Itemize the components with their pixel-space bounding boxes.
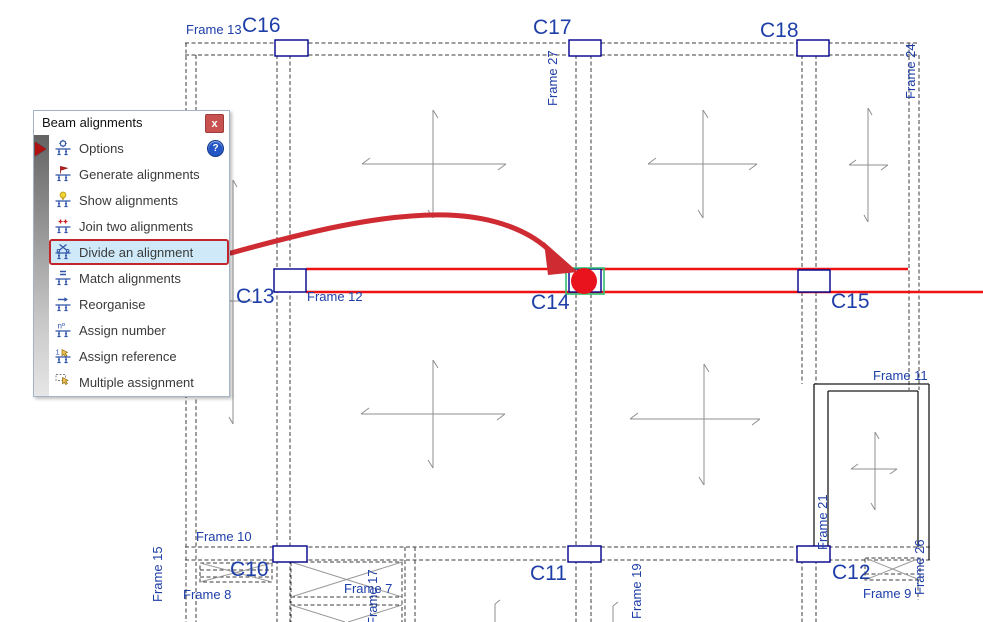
slab-cross-symbols: [222, 108, 897, 622]
svg-text:1: 1: [56, 348, 60, 357]
options-gear-icon: [54, 139, 72, 157]
reorganise-arrow-icon: [54, 295, 72, 313]
column-label-c18: C18: [760, 20, 799, 41]
menu-item-divide-an-alignment[interactable]: Divide an alignment: [49, 239, 229, 265]
frame-label-frame-19: Frame 19: [630, 563, 645, 619]
menu-item-assign-reference[interactable]: 1Assign reference: [49, 343, 229, 369]
show-bulb-icon: [54, 191, 72, 209]
column-label-c17: C17: [533, 17, 572, 38]
annotation-arrow: [231, 215, 578, 275]
frame-label-frame-13: Frame 13: [186, 23, 242, 36]
divide-scissors-icon: [54, 243, 72, 261]
column-label-c14: C14: [531, 292, 570, 313]
frame-label-frame-15: Frame 15: [151, 546, 166, 602]
menu-item-label: Divide an alignment: [79, 245, 193, 260]
plan-solid-room-walls: [814, 384, 929, 560]
generate-flag-icon: [54, 165, 72, 183]
help-icon[interactable]: ?: [207, 140, 224, 157]
frame-label-frame-24: Frame 24: [904, 43, 919, 99]
app-canvas: Frame 13C16C17C18Frame 27Frame 24C13Fram…: [0, 0, 983, 622]
column-label-c11: C11: [530, 563, 567, 584]
panel-gradient-strip: [34, 135, 49, 396]
frame-label-frame-10: Frame 10: [196, 530, 252, 543]
menu-item-label: Reorganise: [79, 297, 146, 312]
menu-item-label: Multiple assignment: [79, 375, 194, 390]
menu-item-label: Match alignments: [79, 271, 181, 286]
menu-item-label: Assign number: [79, 323, 166, 338]
menu-item-label: Options: [79, 141, 124, 156]
beam-alignments-panel: Beam alignments x Options?Generate align…: [33, 110, 230, 397]
menu-item-assign-number[interactable]: nºAssign number: [49, 317, 229, 343]
column-label-c10: C10: [230, 559, 269, 580]
join-alignments-icon: [54, 217, 72, 235]
column-label-c15: C15: [831, 291, 870, 312]
column-label-c13: C13: [236, 286, 275, 307]
menu-item-label: Join two alignments: [79, 219, 193, 234]
menu-item-show-alignments[interactable]: Show alignments: [49, 187, 229, 213]
highlighted-beam-alignment[interactable]: [306, 269, 983, 292]
assign-reference-icon: 1: [54, 347, 72, 365]
menu-item-label: Assign reference: [79, 349, 177, 364]
frame-label-frame-8: Frame 8: [183, 588, 231, 601]
menu-item-label: Show alignments: [79, 193, 178, 208]
menu-item-match-alignments[interactable]: Match alignments: [49, 265, 229, 291]
menu-item-reorganise[interactable]: Reorganise: [49, 291, 229, 317]
multiple-assignment-icon: [54, 373, 72, 391]
svg-text:nº: nº: [58, 322, 65, 331]
frame-label-frame-11: Frame 11: [873, 369, 928, 382]
frame-label-frame-17: Frame 17: [366, 569, 381, 622]
menu-item-join-two-alignments[interactable]: Join two alignments: [49, 213, 229, 239]
frame-label-frame-26: Frame 26: [913, 539, 928, 595]
close-icon[interactable]: x: [205, 114, 224, 133]
assign-number-icon: nº: [54, 321, 72, 339]
menu-item-label: Generate alignments: [79, 167, 200, 182]
arrowhead-icon: [544, 242, 578, 275]
frame-label-frame-12: Frame 12: [307, 290, 363, 303]
frame-label-frame-21: Frame 21: [816, 494, 831, 550]
menu-item-generate-alignments[interactable]: Generate alignments: [49, 161, 229, 187]
menu-item-options[interactable]: Options?: [49, 135, 229, 161]
column-label-c16: C16: [242, 15, 281, 36]
frame-label-frame-27: Frame 27: [546, 50, 561, 106]
panel-title: Beam alignments: [42, 115, 142, 130]
column-label-c12: C12: [832, 562, 871, 583]
match-alignments-icon: [54, 269, 72, 287]
panel-items: Options?Generate alignmentsShow alignmen…: [49, 135, 229, 395]
active-item-marker-icon: [35, 142, 46, 156]
panel-titlebar[interactable]: Beam alignments x: [34, 111, 229, 135]
frame-label-frame-9: Frame 9: [863, 587, 911, 600]
menu-item-multiple-assignment[interactable]: Multiple assignment: [49, 369, 229, 395]
